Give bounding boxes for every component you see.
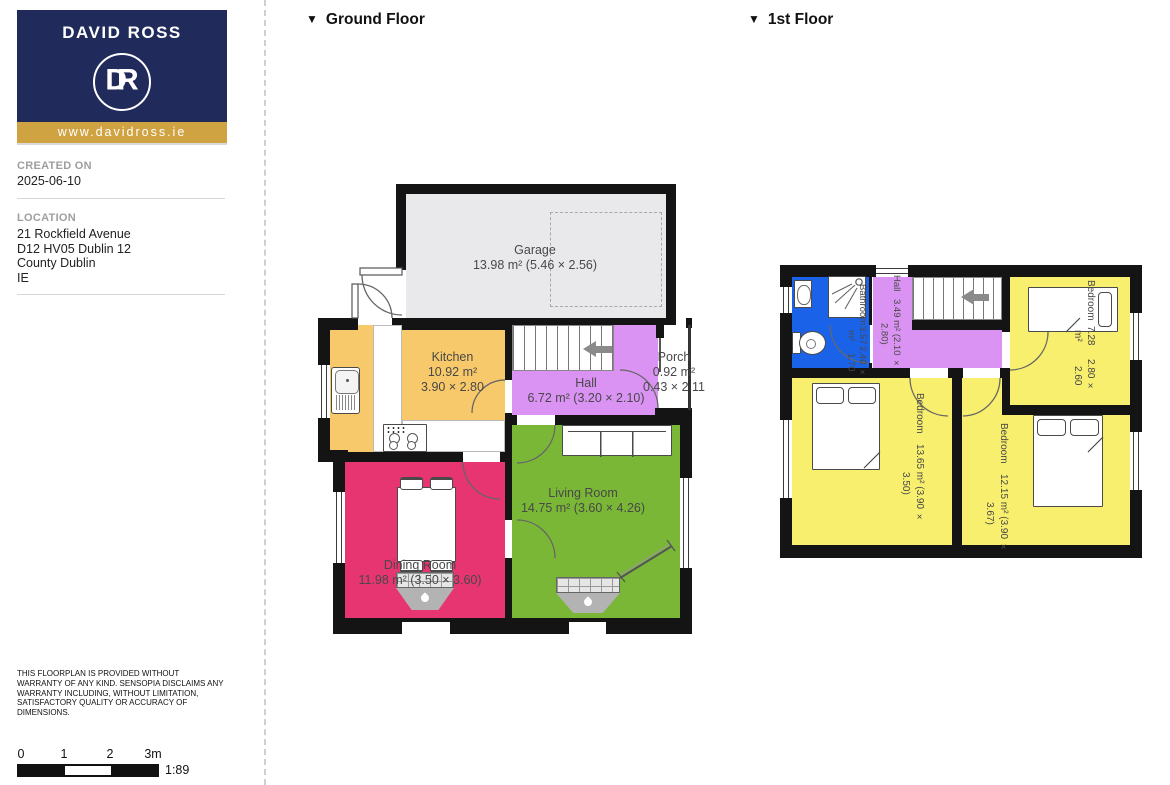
triangle-down-icon: ▼ xyxy=(306,12,318,26)
agency-url: www.davidross.ie xyxy=(17,122,227,143)
wall xyxy=(666,184,676,325)
wall xyxy=(330,452,463,462)
toilet-seat xyxy=(806,339,816,349)
wall xyxy=(912,320,1002,330)
address-line: 21 Rockfield Avenue xyxy=(17,227,131,242)
wall xyxy=(1002,405,1133,415)
bedroom-right-label: Bedroom 12.15 m² (3.90 × 3.67) xyxy=(972,423,1010,563)
address-line: IE xyxy=(17,271,29,286)
kitchen-sink-drain xyxy=(346,379,349,382)
living-room-label: Living Room 14.75 m² (3.60 × 4.26) xyxy=(493,486,673,516)
bed-pillow xyxy=(848,387,876,404)
kitchen-drainer xyxy=(336,395,355,410)
address-line: County Dublin xyxy=(17,256,96,271)
first-floor-header: ▼1st Floor xyxy=(748,11,833,29)
dining-chair xyxy=(430,477,453,490)
bed-pillow xyxy=(816,387,844,404)
wall xyxy=(680,568,692,634)
wall xyxy=(780,545,1142,558)
bed-pillow xyxy=(1037,419,1066,436)
scale-ratio: 1:89 xyxy=(165,763,189,777)
chimney-recess xyxy=(402,622,450,634)
disclaimer-text: THIS FLOORPLAN IS PROVIDED WITHOUT WARRA… xyxy=(17,669,225,718)
wall xyxy=(505,318,676,325)
wall xyxy=(505,325,512,380)
bathroom-sink-basin xyxy=(797,285,811,305)
wall xyxy=(333,618,692,634)
window xyxy=(780,420,792,498)
agency-monogram-icon: DR xyxy=(93,53,151,111)
wall xyxy=(512,415,517,425)
garage-label: Garage 13.98 m² (5.46 × 2.56) xyxy=(440,243,630,273)
window xyxy=(680,478,692,568)
wall xyxy=(396,184,676,194)
dining-room-label: Dining Room 11.98 m² (3.50 × 3.60) xyxy=(330,558,510,588)
window xyxy=(1130,432,1142,490)
sidebar-divider xyxy=(17,294,225,295)
created-on-value: 2025-06-10 xyxy=(17,174,81,189)
wall xyxy=(1130,265,1142,313)
scale-bar: 0 1 2 3m 1:89 xyxy=(17,747,227,781)
wall xyxy=(392,318,512,330)
wall xyxy=(780,265,792,287)
wall xyxy=(1002,265,1010,332)
dining-chair xyxy=(400,477,423,490)
sidebar-divider xyxy=(17,198,225,199)
panel-separator xyxy=(264,0,266,785)
stove-knobs xyxy=(386,426,406,433)
window xyxy=(318,365,330,418)
dining-table xyxy=(397,487,456,562)
ground-floor-header: ▼Ground Floor xyxy=(306,11,425,29)
wall xyxy=(948,368,963,378)
scale-tick: 2 xyxy=(107,747,114,761)
hall-1f-label: Hall 3.49 m² (2.10 × 2.80) xyxy=(868,275,902,377)
scale-tick: 1 xyxy=(61,747,68,761)
porch-label: Porch 0.92 m² 0.43 × 2.11 xyxy=(636,350,712,395)
window xyxy=(1130,313,1142,360)
kitchen-sink-basin xyxy=(335,370,359,394)
wall xyxy=(680,415,692,478)
stove-burner xyxy=(389,441,398,450)
stair-direction-arrow-icon xyxy=(595,346,612,353)
chimney-recess xyxy=(569,622,606,634)
created-on-label: CREATED ON xyxy=(17,160,92,172)
bathroom-label: Bathroom 3.57 m² 2.40 × 1.70 xyxy=(824,284,868,379)
wall xyxy=(555,415,660,425)
address-line: D12 HV05 Dublin 12 xyxy=(17,242,131,257)
scale-bar-graphic xyxy=(17,764,159,777)
bedroom-left-label: Bedroom 13.65 m² (3.90 × 3.50) xyxy=(888,393,926,533)
bed-pillow xyxy=(1098,292,1112,327)
window xyxy=(333,492,345,563)
triangle-down-icon: ▼ xyxy=(748,12,760,26)
bed-pillow xyxy=(1070,419,1099,436)
agency-logo: DAVID ROSS DR www.davidross.ie xyxy=(17,10,227,143)
location-label: LOCATION xyxy=(17,212,76,224)
floorplan-page: DAVID ROSS DR www.davidross.ie CREATED O… xyxy=(0,0,1170,785)
wall xyxy=(396,184,406,270)
scale-tick: 3m xyxy=(144,747,161,761)
wall xyxy=(780,313,792,420)
fireplace-hearth xyxy=(556,577,620,593)
wall xyxy=(318,318,330,368)
scale-tick: 0 xyxy=(18,747,25,761)
sofa-cushions xyxy=(568,431,666,457)
stair-direction-arrow-icon xyxy=(973,294,989,301)
window xyxy=(780,287,792,313)
room-hall-1f xyxy=(912,330,1002,368)
wall xyxy=(656,318,664,338)
agency-name: DAVID ROSS xyxy=(17,23,227,43)
wall xyxy=(1130,360,1142,432)
wall xyxy=(952,378,962,545)
kitchen-label: Kitchen 10.92 m² 3.90 × 2.80 xyxy=(405,350,500,395)
stove-burner xyxy=(407,441,416,450)
bedroom-small-label: Bedroom 7.28 m² 2.80 × 2.60 xyxy=(1053,280,1097,400)
